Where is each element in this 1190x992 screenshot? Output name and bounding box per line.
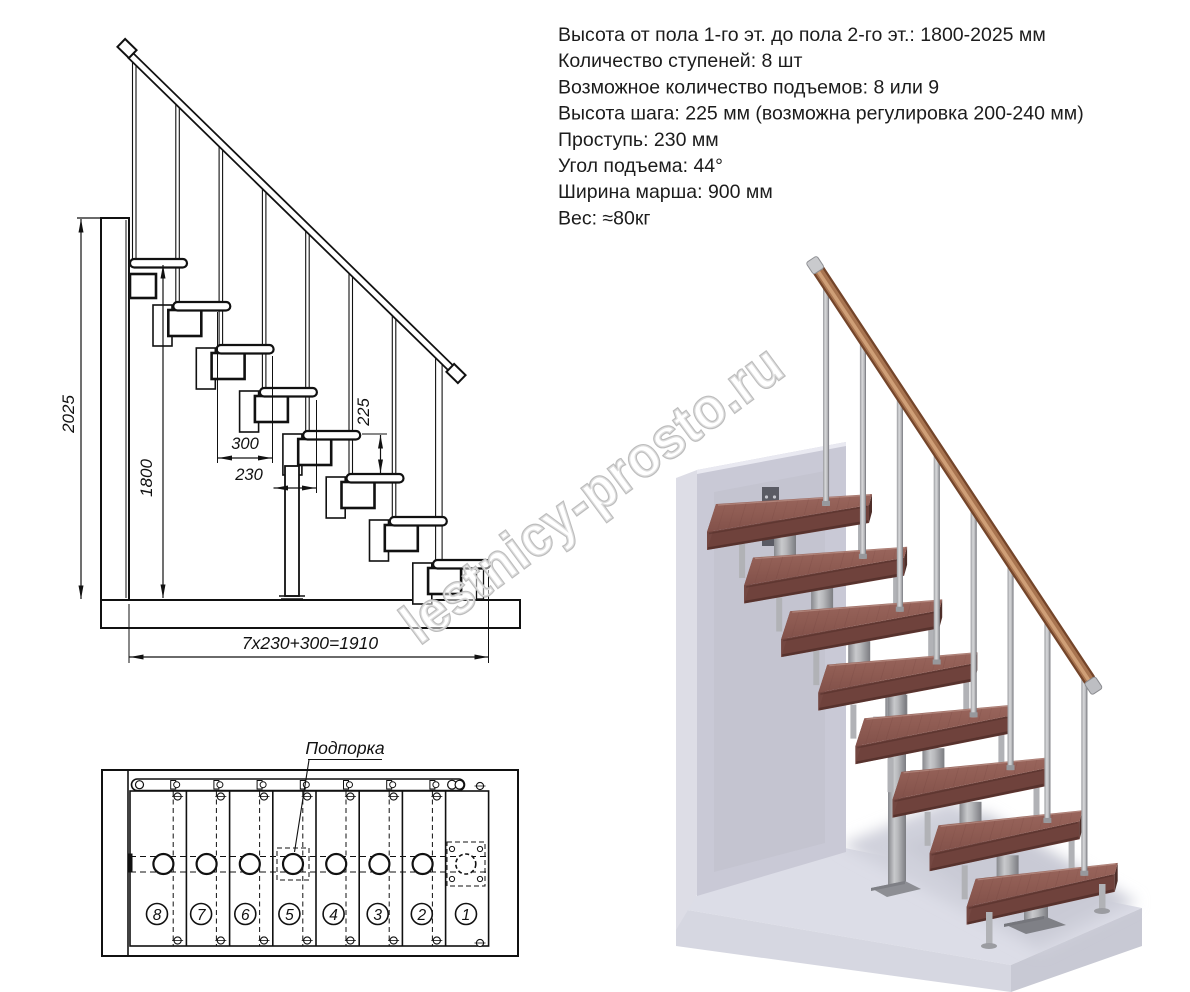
svg-text:Высота от пола 1-го эт. до пол: Высота от пола 1-го эт. до пола 2-го эт.… <box>558 24 1046 46</box>
svg-text:1800: 1800 <box>137 459 156 497</box>
svg-text:Возможное количество подъемов:: Возможное количество подъемов: 8 или 9 <box>558 76 939 98</box>
svg-text:6: 6 <box>241 907 250 924</box>
svg-text:1: 1 <box>462 907 471 924</box>
svg-text:225: 225 <box>355 397 373 426</box>
svg-text:2: 2 <box>417 907 427 924</box>
svg-text:Вес: ≈80кг: Вес: ≈80кг <box>558 207 650 229</box>
svg-text:300: 300 <box>231 435 259 453</box>
svg-text:Количество ступеней: 8 шт: Количество ступеней: 8 шт <box>558 50 802 72</box>
svg-text:Высота шага: 225 мм (возможна: Высота шага: 225 мм (возможна регулировк… <box>558 103 1084 125</box>
svg-text:7x230+300=1910: 7x230+300=1910 <box>242 633 379 653</box>
svg-text:4: 4 <box>329 907 338 924</box>
svg-text:Подпорка: Подпорка <box>305 738 384 758</box>
svg-text:2025: 2025 <box>59 395 78 434</box>
svg-text:Проступь: 230 мм: Проступь: 230 мм <box>558 129 719 151</box>
svg-text:5: 5 <box>285 907 294 924</box>
svg-text:230: 230 <box>234 466 263 484</box>
svg-text:8: 8 <box>153 907 162 924</box>
svg-text:7: 7 <box>197 907 207 924</box>
svg-text:3: 3 <box>373 907 382 924</box>
svg-text:Ширина марша: 900 мм: Ширина марша: 900 мм <box>558 181 773 203</box>
svg-text:Угол подъема: 44°: Угол подъема: 44° <box>558 155 723 177</box>
